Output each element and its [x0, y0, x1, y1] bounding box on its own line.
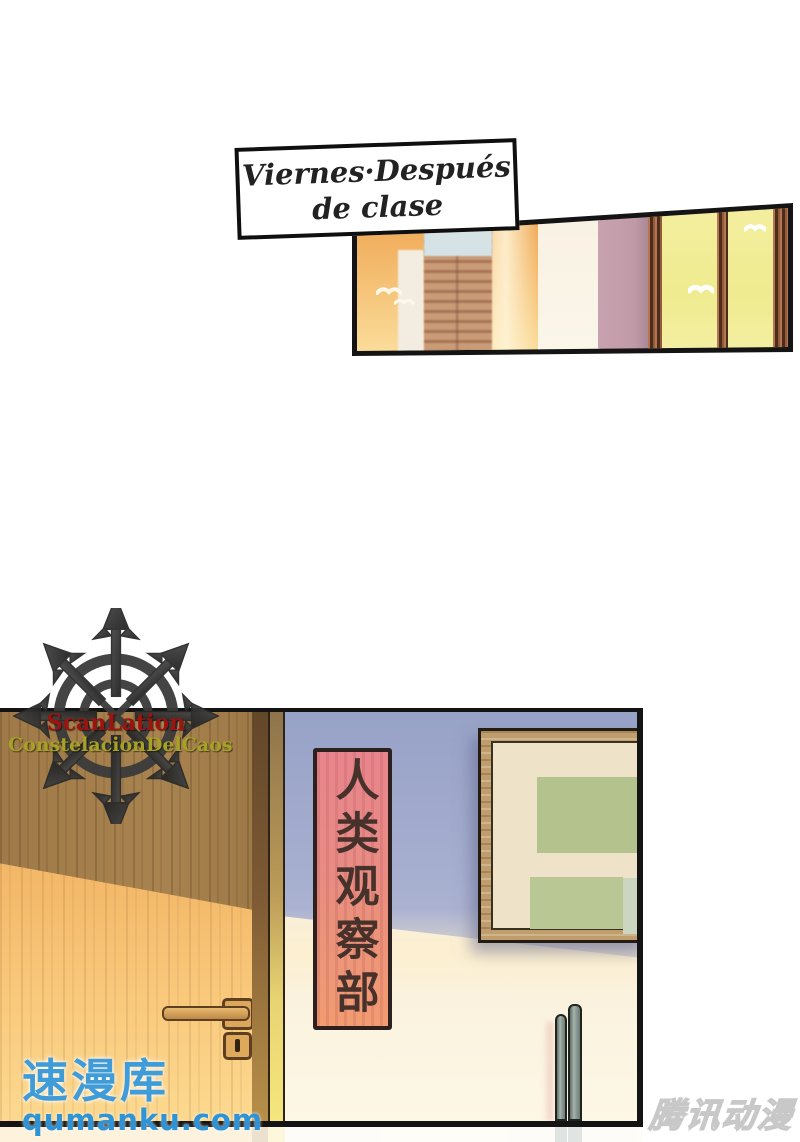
wall-column-mauve	[598, 200, 650, 358]
bird-icon	[688, 282, 714, 294]
caption-line-2: de clase	[311, 187, 443, 228]
door-keyhole-plate	[223, 1032, 252, 1060]
posted-notice	[537, 777, 637, 853]
scanlation-group: ConstelacionDelCaos	[8, 734, 224, 756]
bird-icon	[744, 222, 766, 232]
door-frame-lit	[268, 712, 285, 1121]
pole	[568, 1004, 582, 1121]
tencent-comics-watermark: 腾讯动漫	[647, 1088, 796, 1137]
manga-page: Viernes·Después de clase	[0, 0, 800, 1142]
qumanku-url: qumanku.com	[22, 1106, 263, 1135]
scanlation-logo: ScanLation ConstelacionDelCaos	[8, 608, 224, 824]
posted-notice	[530, 877, 623, 929]
scanlation-name: ScanLation	[8, 710, 224, 736]
pole	[555, 1014, 567, 1121]
club-sign: 人类观察部	[313, 748, 392, 1030]
club-sign-text: 人类观察部	[317, 752, 388, 1026]
posted-notice	[623, 878, 637, 934]
wall-column-white	[538, 200, 600, 358]
keyhole-icon	[235, 1039, 240, 1052]
caption-line-1: Viernes·Después	[241, 148, 511, 193]
window-frame	[648, 200, 662, 358]
door-handle-lever	[162, 1006, 250, 1021]
bulletin-board	[478, 728, 637, 943]
building-glass-top	[424, 230, 492, 256]
caption-box: Viernes·Después de clase	[234, 138, 519, 240]
bird-icon	[394, 296, 414, 306]
window-frame	[717, 200, 728, 358]
window-frame	[773, 200, 788, 358]
bird-icon	[376, 284, 402, 296]
bulletin-board-mat	[491, 741, 637, 930]
qumanku-watermark: 速漫库 qumanku.com	[22, 1058, 263, 1135]
pole-shadow	[543, 1022, 553, 1121]
qumanku-title: 速漫库	[22, 1058, 263, 1104]
